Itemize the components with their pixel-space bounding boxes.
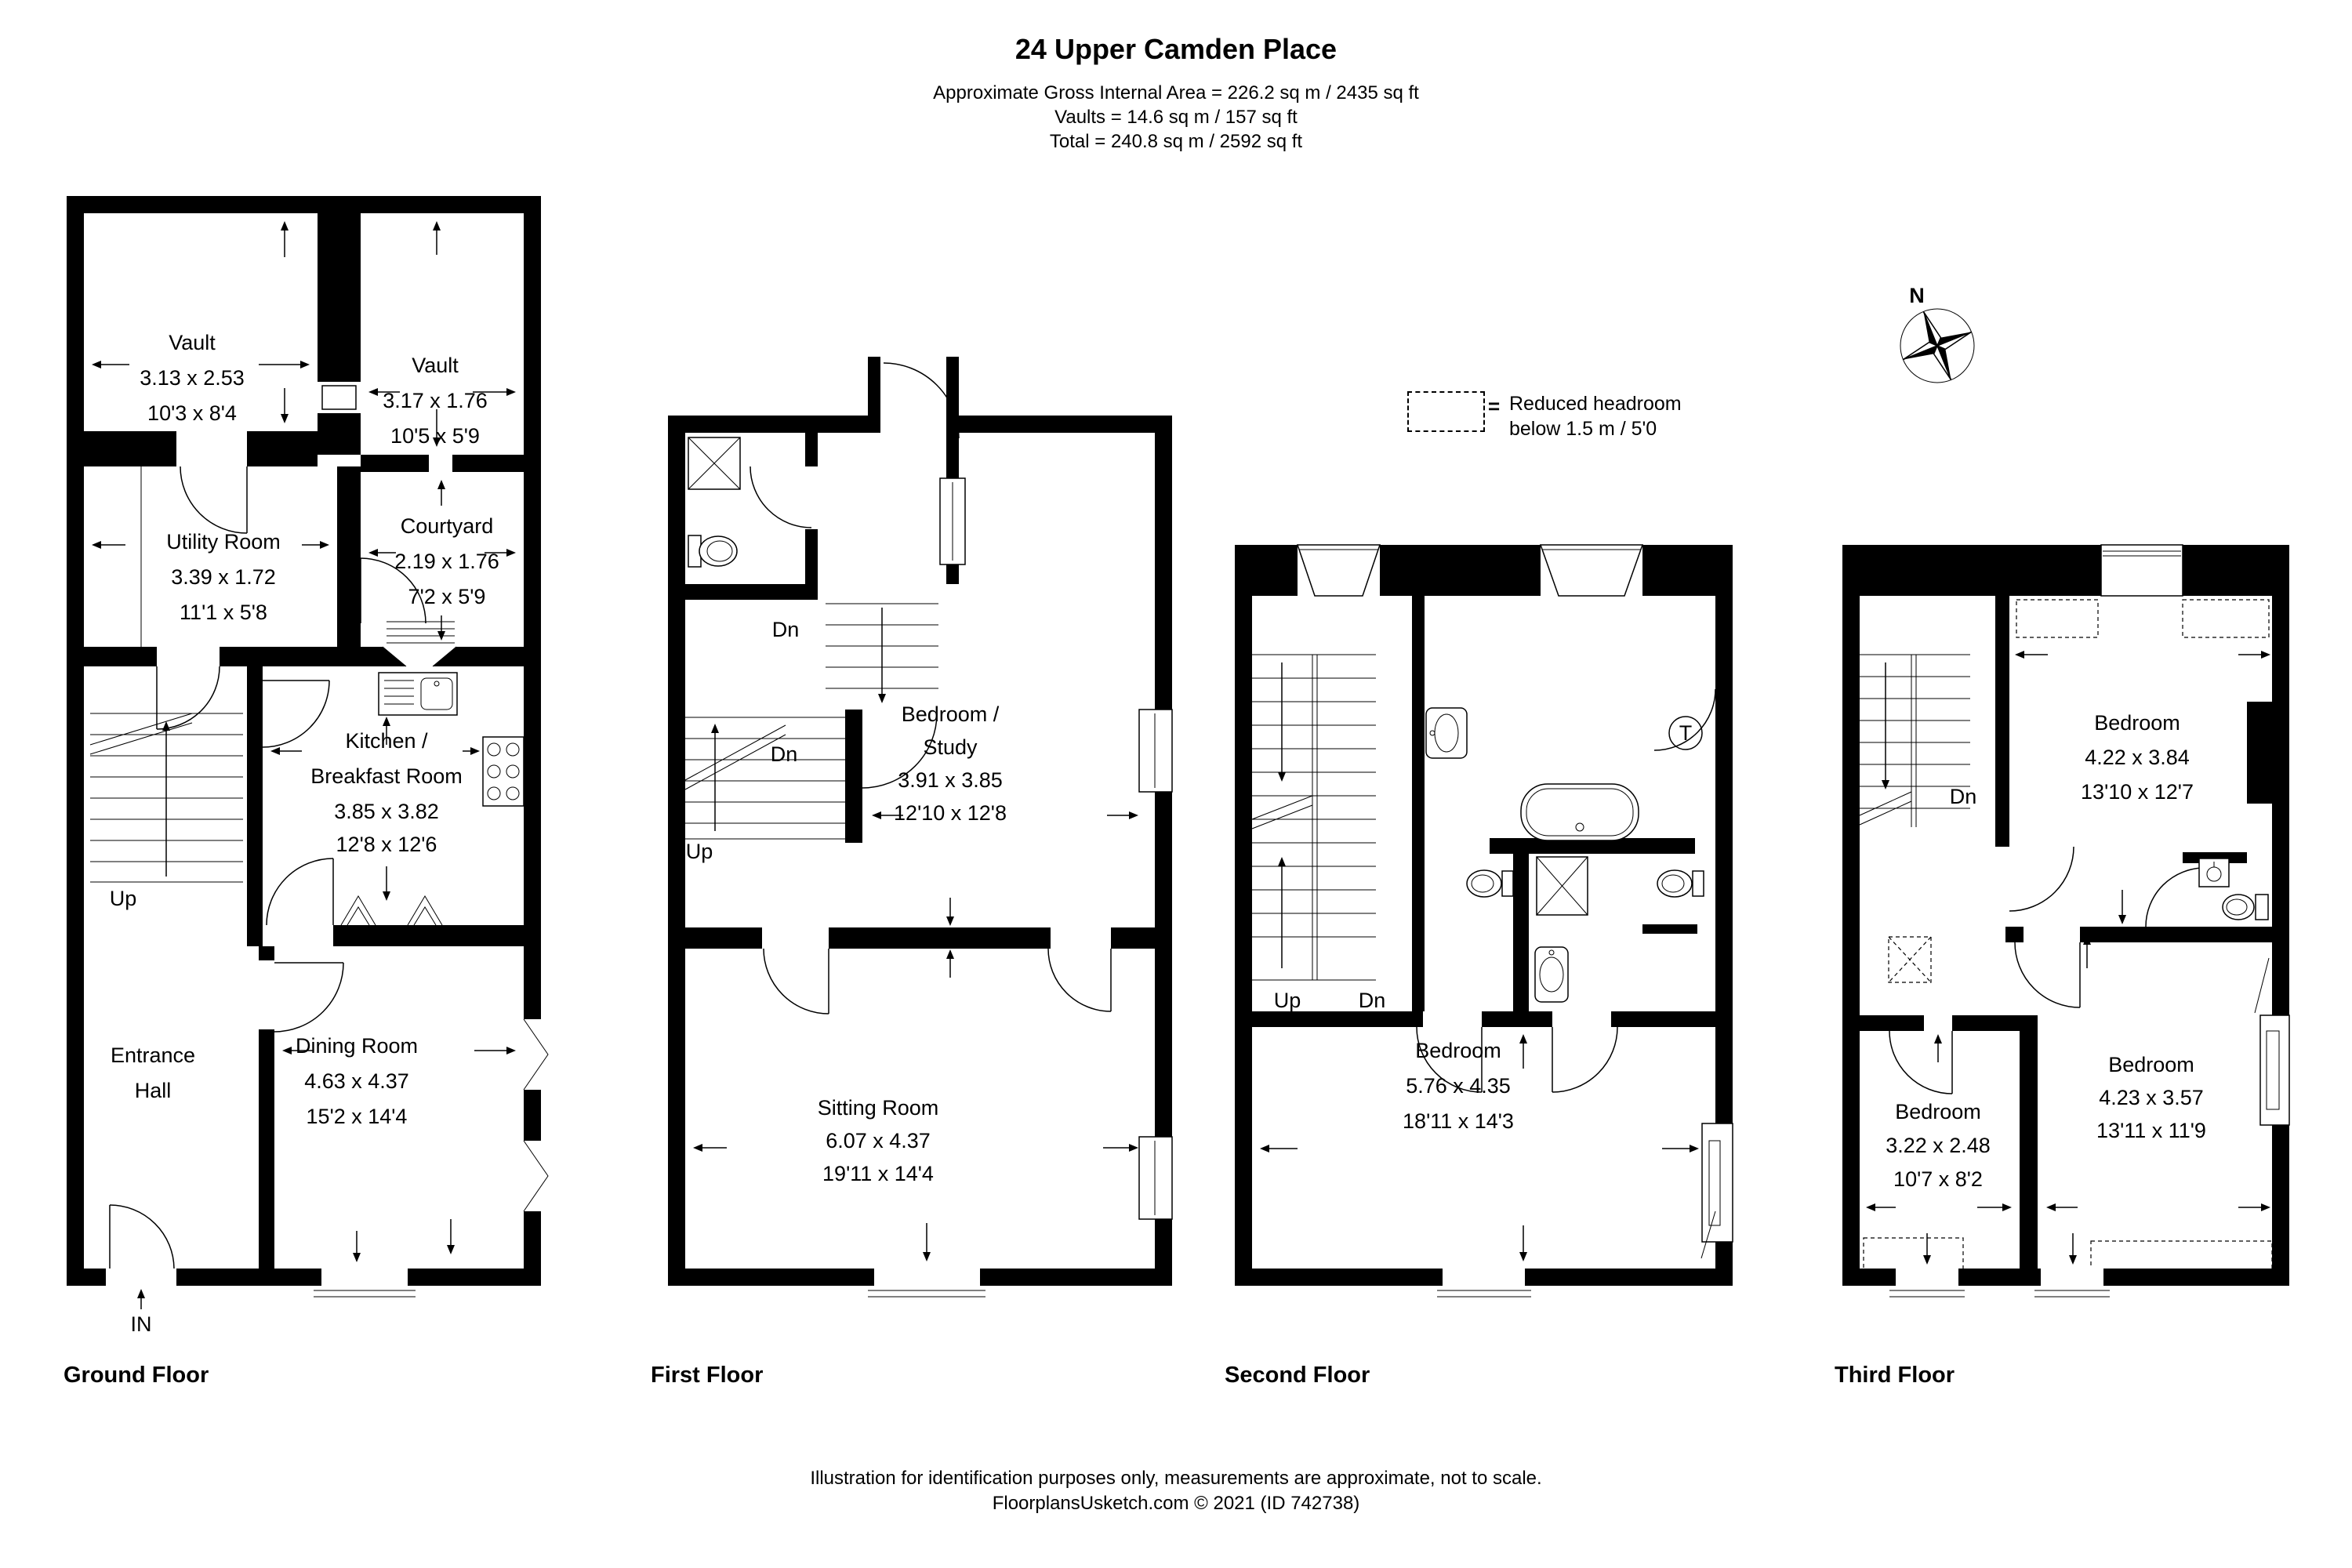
room-label-bedroom-top: Bedroom	[2094, 711, 2180, 735]
room-label-bedroom-study-2: Study	[923, 735, 978, 759]
room-dims-bedroom-study-ft: 12'10 x 12'8	[894, 801, 1007, 825]
room-dims-bedroom-right-ft: 13'11 x 11'9	[2096, 1119, 2206, 1142]
room-label-entrance-2: Hall	[135, 1079, 172, 1102]
door-arc	[180, 466, 247, 533]
skylight-icon	[1889, 937, 1931, 982]
toilet-icon	[1657, 870, 1704, 897]
room-dims-kitchen-m: 3.85 x 3.82	[334, 800, 439, 823]
room-dims-sitting-ft: 19'11 x 14'4	[822, 1162, 934, 1185]
door-arc	[2009, 847, 2074, 911]
floor-plan-first-floor: Bedroom / Study 3.91 x 3.85 12'10 x 12'8…	[668, 357, 1174, 1305]
toilet-icon	[1467, 870, 1513, 897]
basin-icon	[1426, 708, 1467, 758]
room-dims-bedroom-ft: 18'11 x 14'3	[1403, 1109, 1514, 1133]
room-dims-bedroom-left-m: 3.22 x 2.48	[1886, 1134, 1991, 1157]
room-dims-bedroom-top-ft: 13'10 x 12'7	[2081, 780, 2194, 804]
compass-north-label: N	[1909, 284, 1925, 307]
room-label-vault-1: Vault	[169, 331, 216, 354]
room-dims-bedroom-m: 5.76 x 4.35	[1406, 1074, 1511, 1098]
door-arc	[2015, 942, 2080, 1007]
area-summary-line-1: Approximate Gross Internal Area = 226.2 …	[0, 81, 2352, 105]
floor-plan-second-floor: Bedroom 5.76 x 4.35 18'11 x 14'3 Up Dn T	[1235, 545, 1737, 1301]
room-label-bedroom-right: Bedroom	[2108, 1053, 2194, 1076]
room-dims-utility-m: 3.39 x 1.72	[171, 565, 276, 589]
stairs-dn-label: Dn	[1950, 785, 1977, 808]
floor-label-third: Third Floor	[1835, 1363, 1955, 1388]
area-summary-line-3: Total = 240.8 sq m / 2592 sq ft	[0, 129, 2352, 154]
door-arc	[1889, 1031, 1952, 1094]
entry-in-label: IN	[131, 1312, 152, 1336]
toilet-icon	[2223, 895, 2268, 920]
area-summary: Approximate Gross Internal Area = 226.2 …	[0, 81, 2352, 154]
room-dims-utility-ft: 11'1 x 5'8	[180, 601, 267, 624]
staircase	[90, 713, 243, 882]
door-arc	[764, 949, 829, 1014]
basin-icon	[2199, 858, 2229, 887]
stairs-dn-upper-label: Dn	[772, 618, 800, 641]
floor-label-second: Second Floor	[1225, 1363, 1370, 1388]
dimension-arrows	[1261, 1036, 1697, 1260]
room-dims-courtyard-ft: 7'2 x 5'9	[408, 585, 486, 608]
door-arc	[267, 858, 333, 925]
room-dims-dining-m: 4.63 x 4.37	[304, 1069, 409, 1093]
dimension-arrows	[695, 815, 1137, 1260]
room-dims-bedroom-right-m: 4.23 x 3.57	[2099, 1086, 2204, 1109]
floor-plan-third-floor: Bedroom 4.22 x 3.84 13'10 x 12'7 Bedroom…	[1842, 545, 2293, 1301]
room-label-bedroom-study-1: Bedroom /	[902, 702, 1000, 726]
reduced-headroom-area	[2091, 1241, 2272, 1273]
stairs-up-label: Up	[686, 840, 713, 863]
room-label-sitting: Sitting Room	[818, 1096, 939, 1120]
room-dims-vault-1-m: 3.13 x 2.53	[140, 366, 245, 390]
footer-credit: FloorplansUsketch.com © 2021 (ID 742738)	[0, 1493, 2352, 1515]
toilet-icon	[688, 535, 737, 567]
door-arc	[2146, 868, 2205, 927]
legend-line-1: Reduced headroom	[1509, 391, 1682, 416]
reduced-headroom-area	[2016, 600, 2098, 637]
vault-door	[322, 386, 356, 409]
staircase	[1252, 655, 1376, 980]
reduced-headroom-swatch	[1407, 391, 1485, 432]
stairs-up-label: Up	[110, 887, 137, 910]
page-title: 24 Upper Camden Place	[0, 33, 2352, 66]
room-dims-bedroom-study-m: 3.91 x 3.85	[898, 768, 1003, 792]
room-label-entrance-1: Entrance	[111, 1044, 195, 1067]
door-arc	[263, 681, 329, 747]
shower-icon	[1537, 857, 1588, 915]
staircase-down	[826, 604, 938, 702]
room-label-kitchen-2: Breakfast Room	[310, 764, 463, 788]
stove-icon	[483, 737, 524, 806]
bay-window-icon	[2101, 545, 2183, 596]
legend-equals: =	[1488, 394, 1500, 419]
reduced-headroom-legend: Reduced headroom below 1.5 m / 5'0	[1509, 391, 1682, 441]
door-arc	[750, 466, 811, 528]
door-arc	[1048, 949, 1111, 1011]
shower-icon	[688, 437, 740, 489]
room-dims-bedroom-top-m: 4.22 x 3.84	[2085, 746, 2190, 769]
compass-icon: N	[1878, 279, 2003, 397]
floor-label-ground: Ground Floor	[64, 1363, 209, 1388]
room-dims-dining-ft: 15'2 x 14'4	[307, 1105, 408, 1128]
room-dims-bedroom-left-ft: 10'7 x 8'2	[1893, 1167, 1983, 1191]
door-arc	[157, 666, 220, 729]
room-label-bedroom-left: Bedroom	[1895, 1100, 1981, 1123]
kitchen-sink-icon	[379, 673, 457, 715]
room-label-dining: Dining Room	[296, 1034, 418, 1058]
courtyard-steps	[387, 622, 455, 643]
footer-disclaimer: Illustration for identification purposes…	[0, 1468, 2352, 1490]
room-label-courtyard: Courtyard	[401, 514, 494, 538]
room-label-vault-2: Vault	[412, 354, 459, 377]
front-door-arc	[110, 1205, 174, 1269]
legend-line-2: below 1.5 m / 5'0	[1509, 416, 1682, 441]
door-arc	[274, 963, 343, 1032]
room-label-bedroom: Bedroom	[1415, 1039, 1501, 1062]
floor-plan-ground-floor: Vault 3.13 x 2.53 10'3 x 8'4 Vault 3.17 …	[67, 196, 568, 1341]
basin-icon	[1535, 947, 1568, 1002]
room-label-utility: Utility Room	[166, 530, 281, 554]
room-dims-vault-2-m: 3.17 x 1.76	[383, 389, 488, 412]
stairs-dn-label: Dn	[1359, 989, 1386, 1012]
room-dims-courtyard-m: 2.19 x 1.76	[394, 550, 499, 573]
area-summary-line-2: Vaults = 14.6 sq m / 157 sq ft	[0, 105, 2352, 129]
room-dims-sitting-m: 6.07 x 4.37	[826, 1129, 931, 1152]
tank-label: T	[1679, 721, 1693, 745]
reduced-headroom-area	[2183, 600, 2269, 637]
room-dims-vault-1-ft: 10'3 x 8'4	[147, 401, 237, 425]
bathtub-icon	[1521, 784, 1639, 840]
room-dims-vault-2-ft: 10'5 x 5'9	[390, 424, 480, 448]
floor-label-first: First Floor	[651, 1363, 763, 1388]
room-label-kitchen-1: Kitchen /	[345, 729, 428, 753]
reduced-headroom-area	[1864, 1238, 1963, 1273]
folding-door-icon	[341, 896, 442, 925]
compass-star-icon	[1889, 298, 1985, 394]
stairs-up-label: Up	[1274, 989, 1301, 1012]
room-dims-kitchen-ft: 12'8 x 12'6	[336, 833, 437, 856]
door-arc	[1552, 1027, 1617, 1092]
stairs-dn-lower-label: Dn	[771, 742, 798, 766]
staircase-up	[685, 717, 845, 839]
